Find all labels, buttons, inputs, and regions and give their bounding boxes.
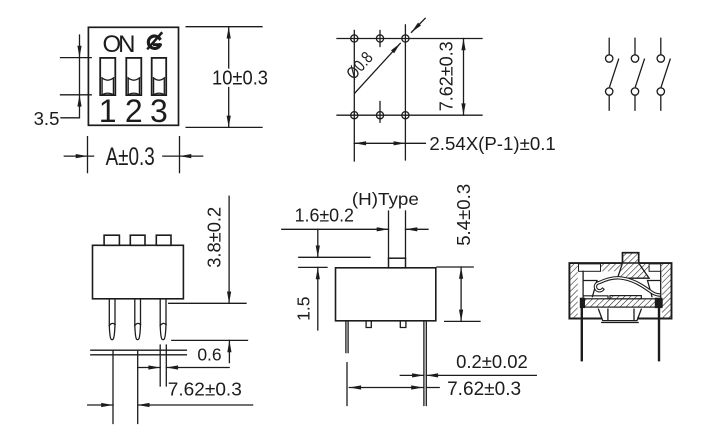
svg-text:0.6: 0.6 — [197, 344, 221, 364]
svg-text:2: 2 — [125, 93, 143, 129]
svg-text:5.4±0.3: 5.4±0.3 — [454, 184, 474, 246]
svg-text:7.62±0.3: 7.62±0.3 — [168, 380, 242, 400]
svg-text:(H)Type: (H)Type — [352, 189, 419, 209]
svg-text:0.2±0.02: 0.2±0.02 — [456, 351, 528, 372]
svg-text:10±0.3: 10±0.3 — [212, 68, 268, 90]
svg-text:Ø0.8: Ø0.8 — [343, 48, 377, 83]
svg-text:3.5: 3.5 — [34, 108, 60, 129]
svg-text:1.5: 1.5 — [293, 297, 313, 321]
svg-text:1.6±0.2: 1.6±0.2 — [295, 206, 354, 226]
svg-text:ON: ON — [103, 31, 136, 58]
svg-text:7.62±0.3: 7.62±0.3 — [436, 41, 456, 111]
svg-text:7.62±0.3: 7.62±0.3 — [447, 379, 521, 400]
svg-text:1: 1 — [99, 93, 117, 129]
svg-text:3: 3 — [150, 93, 168, 129]
svg-text:3.8±0.2: 3.8±0.2 — [205, 207, 225, 268]
svg-text:2.54X(P-1)±0.1: 2.54X(P-1)±0.1 — [429, 133, 555, 154]
svg-text:A±0.3: A±0.3 — [106, 143, 155, 171]
